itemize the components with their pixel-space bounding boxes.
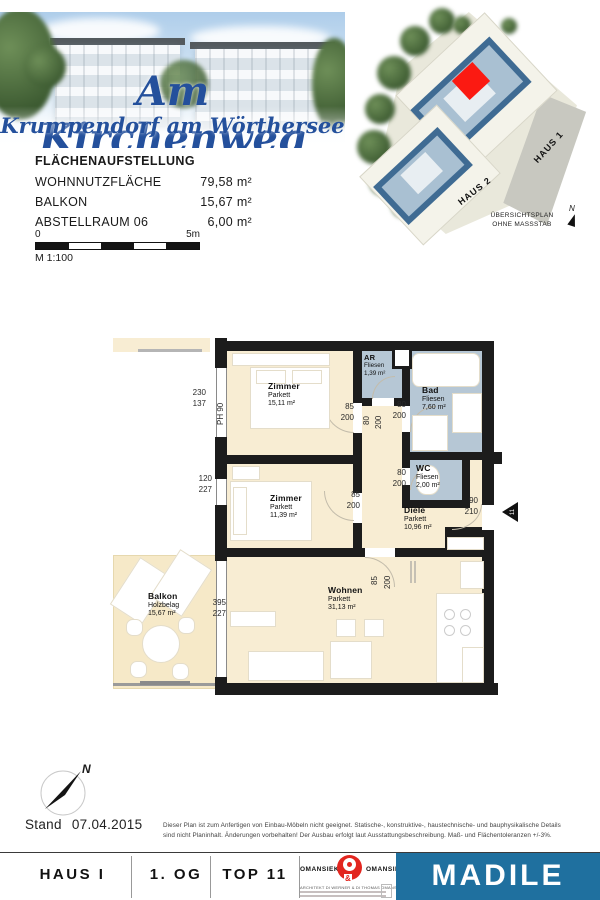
site-north-arrow-icon xyxy=(567,213,578,227)
furniture-chair xyxy=(130,661,147,678)
furniture-chair xyxy=(172,663,189,680)
scale-ratio: M 1:100 xyxy=(35,252,73,264)
area-row-value: 15,67 m² xyxy=(200,195,252,209)
dim-balkon-window: 395227 xyxy=(192,597,226,619)
micro-note xyxy=(414,561,416,583)
area-row-label: ABSTELLRAUM 06 xyxy=(35,215,148,229)
architect-stamp xyxy=(381,884,392,898)
compass-north-label: N xyxy=(82,762,91,776)
architect-contact-line xyxy=(300,895,386,897)
area-row-label: BALKON xyxy=(35,195,88,209)
furniture-kitchen-counter xyxy=(460,561,484,589)
scale-segments xyxy=(35,242,200,250)
building-roof xyxy=(50,38,185,45)
floor-plan-sheet: Am Kirchenweg Krumpendorf am Wörthersee … xyxy=(0,0,600,900)
wall xyxy=(482,464,494,505)
wall xyxy=(215,455,362,464)
neighbor-balcony-railing xyxy=(138,349,202,352)
furniture-sideboard xyxy=(230,611,276,627)
plan-date: Stand 07.04.2015 xyxy=(25,817,142,832)
shaft xyxy=(392,347,412,369)
furniture-washbasin xyxy=(452,393,482,433)
balcony-railing-post xyxy=(140,681,190,685)
label-bad: BadFliesen7,60 m² xyxy=(422,385,446,413)
area-row-value: 6,00 m² xyxy=(208,215,252,229)
area-row-label: WOHNNUTZFLÄCHE xyxy=(35,175,161,189)
site-north-label: N xyxy=(569,204,575,213)
footer-divider xyxy=(210,856,211,898)
area-row-value: 79,58 m² xyxy=(200,175,252,189)
site-note-line1: ÜBERSICHTSPLAN xyxy=(490,212,553,219)
tree xyxy=(400,26,430,56)
wall xyxy=(215,548,365,557)
dim-wohnen-door-h: 200 xyxy=(383,576,392,589)
wall xyxy=(362,398,372,406)
dim-bad-door: 80200 xyxy=(382,399,406,421)
omansiek-right-label: OMANSIEK xyxy=(366,866,400,873)
dim-zimmer2-door: 85200 xyxy=(334,489,360,511)
omansiek-left-label: OMANSIEK xyxy=(300,866,334,873)
furniture-sofa xyxy=(248,651,324,681)
stove-icon xyxy=(442,607,474,639)
tree xyxy=(365,94,395,124)
furniture-round-table xyxy=(142,625,180,663)
dim-entrance-door: 90210 xyxy=(450,495,478,517)
dim-zimmer1-door: 85200 xyxy=(328,401,354,423)
entrance-arrow-icon: 11 xyxy=(500,501,518,523)
label-zimmer2: ZimmerParkett11,39 m² xyxy=(270,493,302,521)
omansiek-ampersand: & xyxy=(344,874,352,883)
architect-address-line xyxy=(300,891,386,893)
dim-zimmer1-window: 230137 xyxy=(168,387,206,409)
furniture-chair xyxy=(178,617,195,634)
label-ar: ARFliesen1,39 m² xyxy=(364,353,385,378)
area-row: ABSTELLRAUM 06 6,00 m² xyxy=(35,215,252,229)
disclaimer-line2: sind nicht Planinhalt. Änderungen vorbeh… xyxy=(163,832,552,839)
wall xyxy=(410,452,494,460)
wall xyxy=(215,683,498,695)
project-subtitle: Krumpendorf am Wörthersee xyxy=(0,113,345,138)
area-table-title: FLÄCHENAUFSTELLUNG xyxy=(35,154,195,168)
building-roof xyxy=(190,42,335,49)
furniture-wardrobe xyxy=(232,353,330,366)
label-zimmer1: ZimmerParkett15,11 m² xyxy=(268,381,300,409)
disclaimer: Dieser Plan ist zum Anfertigen von Einba… xyxy=(163,821,591,841)
micro-note xyxy=(410,561,412,583)
label-diele: DieleParkett10,96 m² xyxy=(404,505,432,533)
dim-wohnen-door-w: 85 xyxy=(370,576,379,585)
furniture-bath-cabinet xyxy=(412,415,448,451)
label-wohnen: WohnenParkett31,13 m² xyxy=(328,585,363,613)
furniture-pillow xyxy=(233,487,247,535)
footer-floor: 1. OG xyxy=(135,866,217,883)
wall xyxy=(482,341,494,452)
footer-top: TOP 11 xyxy=(212,866,298,883)
footer-divider xyxy=(131,856,132,898)
header-photo: Am Kirchenweg Krumpendorf am Wörthersee xyxy=(0,12,345,148)
madile-logo: MADILE xyxy=(396,853,600,900)
furniture-chair xyxy=(336,619,356,637)
apartment-floor-plan: ZimmerParkett15,11 m² ARFliesen1,39 m² B… xyxy=(110,325,512,705)
site-overview-plan: HAUS 1 HAUS 2 ÜBERSICHTSPLAN OHNE MASSST… xyxy=(345,10,600,240)
furniture-closet xyxy=(232,466,260,480)
wall xyxy=(215,338,227,368)
furniture-chair xyxy=(364,619,384,637)
dim-ar-door-w: 80 xyxy=(362,416,371,425)
furniture-table xyxy=(330,641,372,679)
site-note: ÜBERSICHTSPLAN OHNE MASSSTAB xyxy=(483,212,561,230)
wall xyxy=(353,341,362,403)
scale-five: 5m xyxy=(186,229,200,240)
dim-wc-door: 80200 xyxy=(382,467,406,489)
label-wc: WCFliesen2,00 m² xyxy=(416,463,440,491)
furniture-bathtub xyxy=(412,353,480,387)
area-row: BALKON 15,67 m² xyxy=(35,195,252,209)
scale-zero: 0 xyxy=(35,229,41,240)
footer-haus: HAUS I xyxy=(25,866,120,883)
furniture-chair xyxy=(126,619,143,636)
wall xyxy=(402,432,410,460)
furniture-fridge xyxy=(462,647,484,683)
site-note-line2: OHNE MASSSTAB xyxy=(492,221,551,228)
scale-bar: 0 5m M 1:100 xyxy=(35,229,200,265)
svg-text:11: 11 xyxy=(510,508,516,515)
window-zimmer2 xyxy=(216,479,227,505)
label-balkon: BalkonHolzbelag15,67 m² xyxy=(148,591,179,619)
tree xyxy=(429,8,455,34)
dim-zimmer2-window: 120227 xyxy=(178,473,212,495)
area-row: WOHNNUTZFLÄCHE 79,58 m² xyxy=(35,175,252,189)
furniture-wardrobe xyxy=(447,537,484,550)
dim-ph90: PH 90 xyxy=(216,403,225,425)
disclaimer-line1: Dieser Plan ist zum Anfertigen von Einba… xyxy=(163,822,561,829)
